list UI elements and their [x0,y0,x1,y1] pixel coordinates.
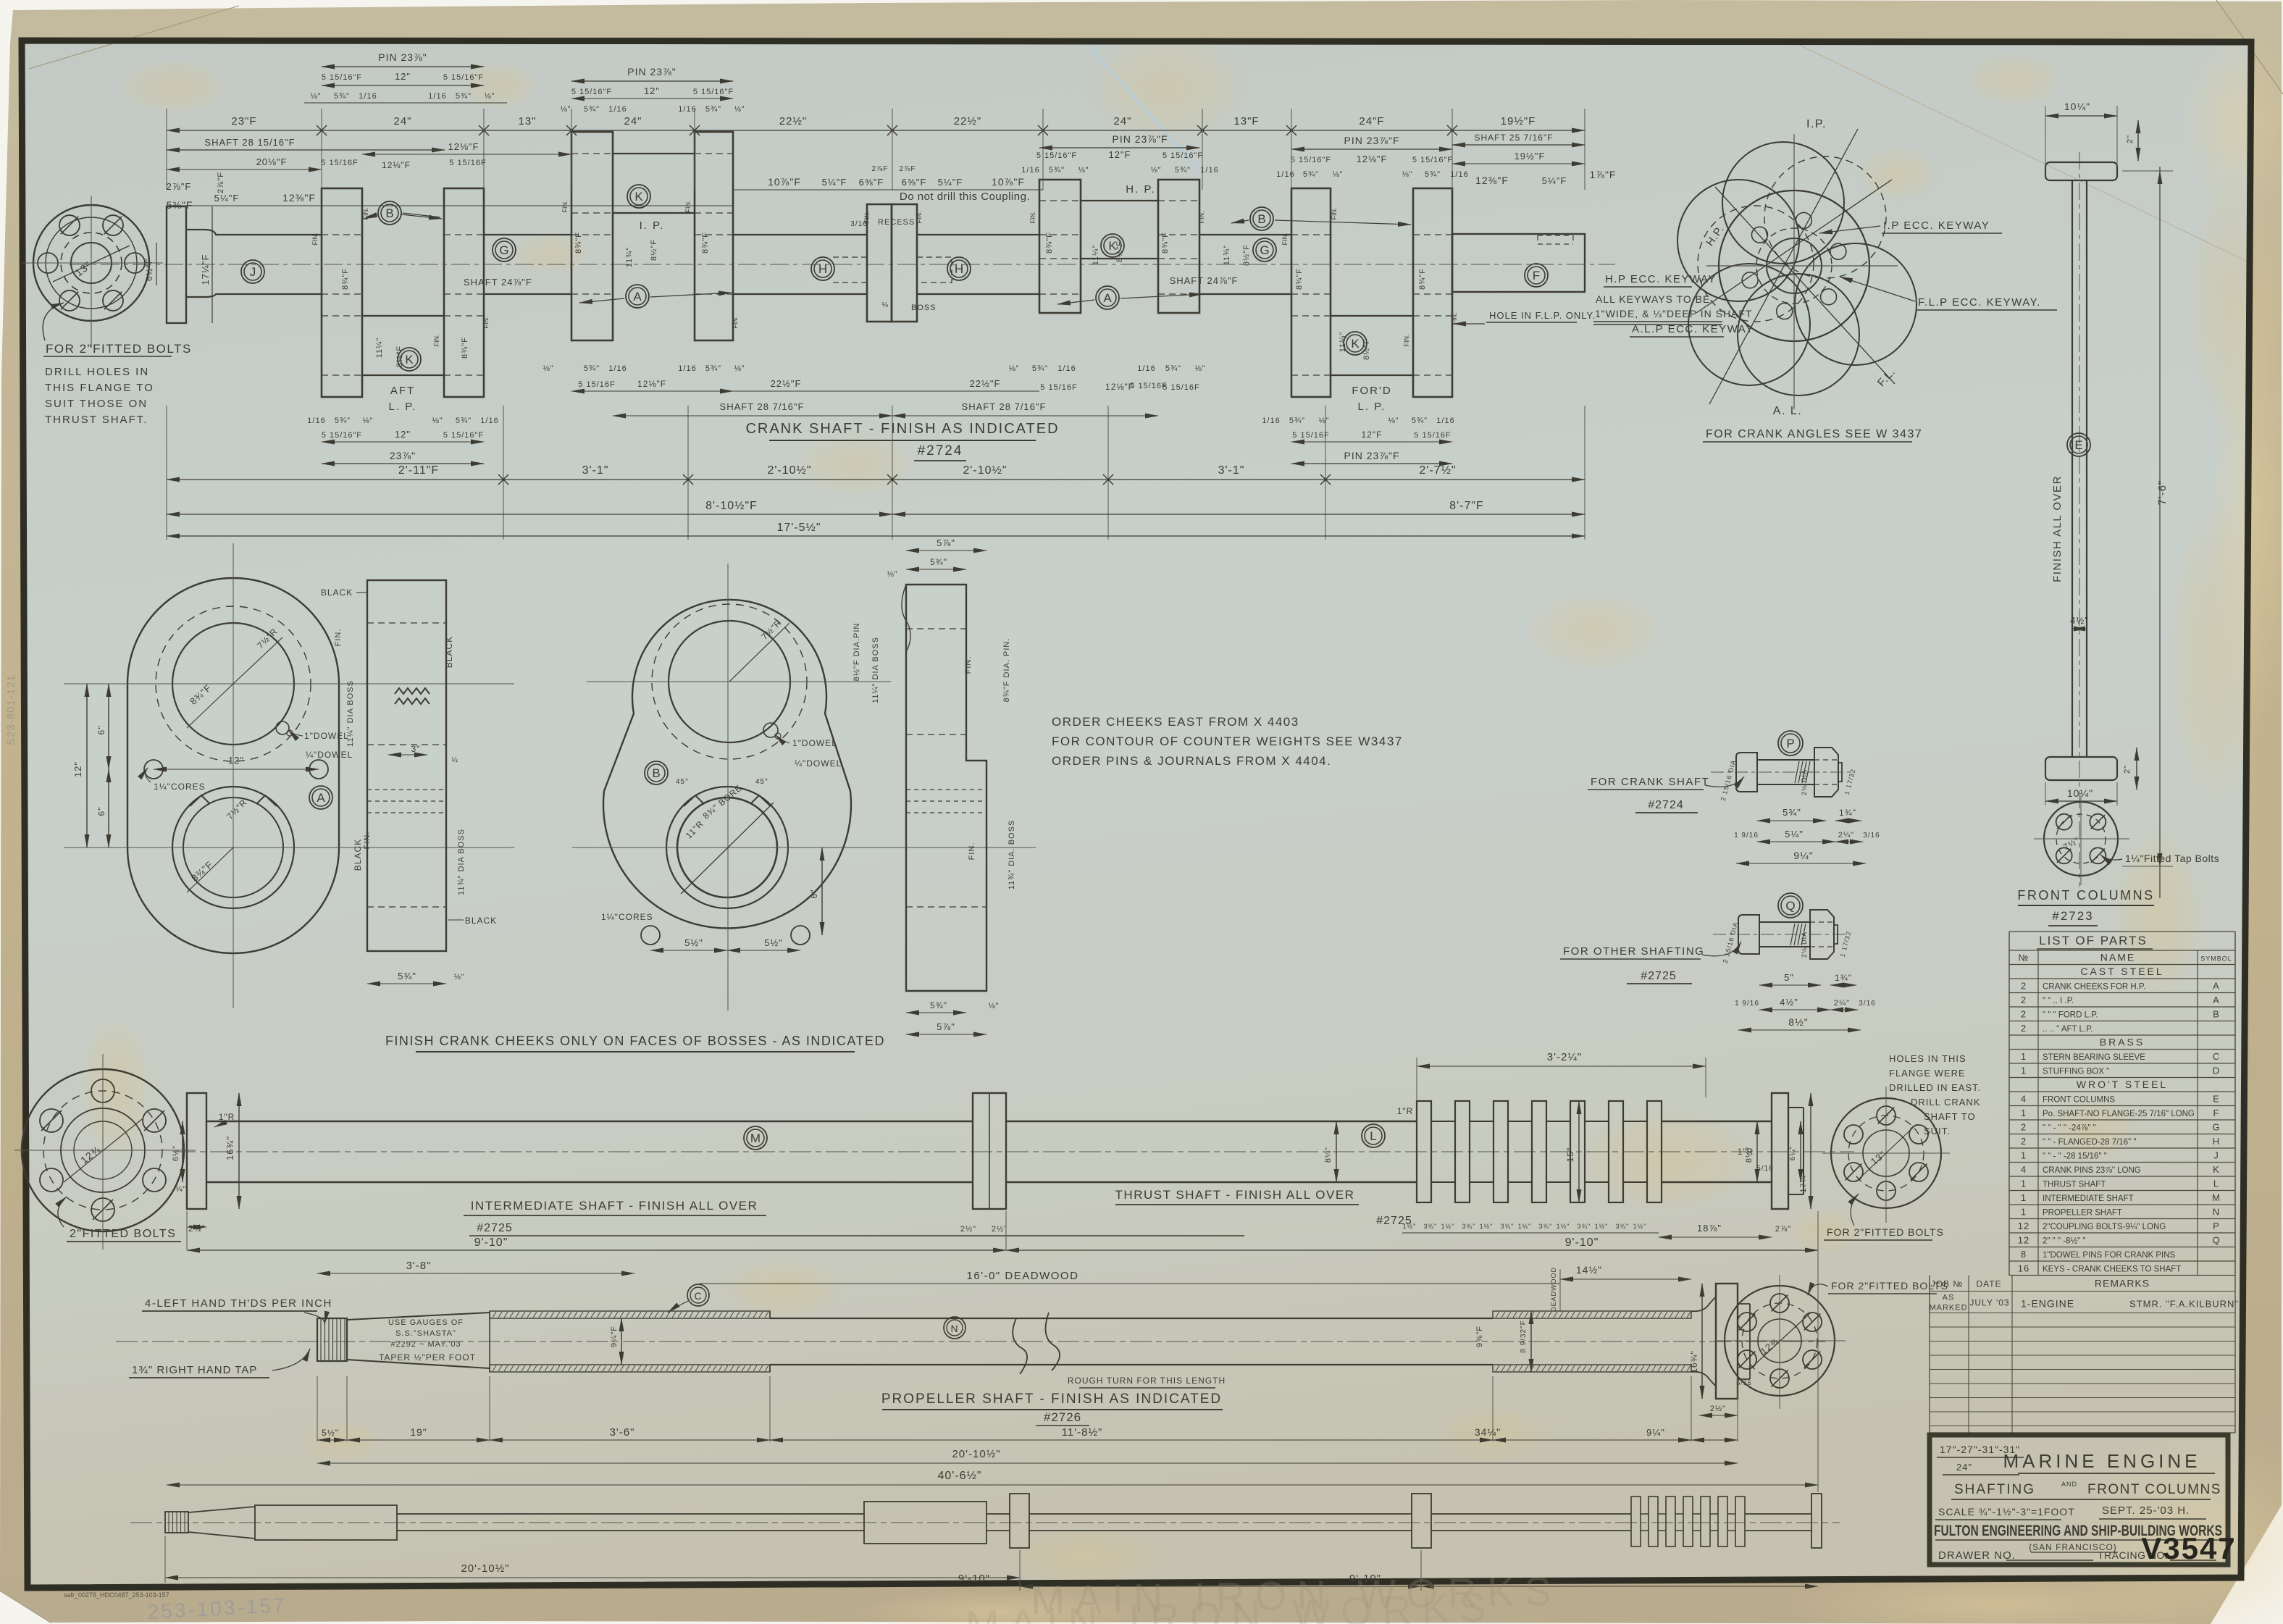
svg-text:4: 4 [2021,1094,2027,1105]
svg-text:SYMBOL: SYMBOL [2200,955,2232,963]
svg-text:FIN.: FIN. [311,233,319,246]
svg-text:2'-10½": 2'-10½" [963,464,1007,477]
svg-text:PIN 23⅞"F: PIN 23⅞"F [1344,135,1400,146]
svg-text:FIN.: FIN. [964,656,973,674]
svg-text:J: J [250,265,256,279]
svg-text:INTERMEDIATE SHAFT - FINISH AL: INTERMEDIATE SHAFT - FINISH ALL OVER [471,1199,758,1213]
svg-text:1/16: 1/16 [1137,364,1155,373]
svg-text:5¾": 5¾" [1783,807,1801,818]
svg-text:16¾": 16¾" [225,1136,235,1160]
svg-text:" " - " -28 15/16" ": " " - " -28 15/16" " [2043,1152,2107,1161]
svg-text:6⅜"F: 6⅜"F [859,177,884,188]
svg-text:14½": 14½" [1576,1264,1602,1276]
svg-text:FOR 2"FITTED BOLTS: FOR 2"FITTED BOLTS [1827,1226,1944,1238]
svg-text:G: G [499,243,508,257]
svg-text:8½"F: 8½"F [1242,244,1251,266]
svg-text:24": 24" [393,115,411,127]
svg-text:SHAFT TO: SHAFT TO [1924,1111,1976,1122]
svg-text:№: № [2019,953,2029,963]
svg-text:5 15/16"F: 5 15/16"F [1163,151,1203,160]
svg-text:A: A [2213,981,2220,992]
svg-text:" " " FORD L.P.: " " " FORD L.P. [2043,1011,2098,1020]
svg-text:1½": 1½" [1441,1223,1455,1230]
svg-text:9'-10": 9'-10" [1565,1236,1599,1249]
svg-text:H: H [818,262,827,276]
svg-text:¼"DOWEL: ¼"DOWEL [795,758,842,769]
svg-text:5 15/16"F: 5 15/16"F [1412,156,1453,164]
svg-text:5 15/16F: 5 15/16F [1163,383,1199,392]
svg-text:BOSS: BOSS [911,304,937,312]
svg-text:AND: AND [2061,1481,2077,1488]
svg-text:5¾": 5¾" [705,105,721,114]
svg-text:FOR CRANK ANGLES SEE W 3437: FOR CRANK ANGLES SEE W 3437 [1706,428,1922,440]
svg-text:FOR'D: FOR'D [1352,385,1391,397]
svg-text:5¾": 5¾" [1425,170,1441,179]
svg-text:1/16: 1/16 [608,105,627,114]
svg-text:22½": 22½" [954,115,982,127]
svg-text:1"DOWEL: 1"DOWEL [304,731,349,741]
svg-text:HOLES IN THIS: HOLES IN THIS [1889,1053,1966,1064]
svg-text:2: 2 [2021,1122,2027,1133]
svg-text:3'-8": 3'-8" [406,1260,432,1272]
svg-text:1: 1 [2021,1108,2027,1118]
svg-text:PIN 23⅞": PIN 23⅞" [378,51,427,63]
svg-text:F: F [2213,1108,2220,1118]
svg-text:12": 12" [395,429,411,440]
svg-text:E: E [2074,438,2082,452]
svg-text:5¾": 5¾" [1175,166,1191,175]
svg-text:8 9/32"F: 8 9/32"F [1520,1320,1528,1352]
svg-text:1"DOWEL: 1"DOWEL [792,738,837,748]
svg-text:FRONT COLUMNS: FRONT COLUMNS [2087,1482,2221,1497]
svg-text:C: C [694,1290,702,1302]
svg-text:8½"F: 8½"F [395,346,404,367]
svg-text:CRANK CHEEKS FOR H.P.: CRANK CHEEKS FOR H.P. [2043,983,2145,992]
svg-text:B: B [1257,212,1265,226]
svg-text:1/16: 1/16 [1450,170,1468,179]
svg-text:2'-7½": 2'-7½" [1419,464,1456,477]
svg-text:6½"F: 6½"F [144,258,154,281]
svg-text:10¼": 10¼" [2064,101,2090,112]
svg-text:INTERMEDIATE SHAFT: INTERMEDIATE SHAFT [2043,1194,2134,1203]
svg-text:SHAFT 25 7/16"F: SHAFT 25 7/16"F [1474,133,1553,143]
svg-text:2: 2 [2021,1136,2027,1147]
svg-text:F: F [1533,269,1540,282]
svg-text:1¾": 1¾" [1835,973,1852,983]
svg-text:1-ENGINE: 1-ENGINE [2021,1298,2074,1310]
svg-text:13": 13" [518,115,536,127]
svg-text:⅛": ⅛" [734,364,745,373]
svg-text:1"R: 1"R [1397,1106,1414,1116]
svg-text:L: L [2213,1179,2219,1189]
svg-text:2: 2 [2021,1009,2027,1020]
svg-text:5 15/16"F: 5 15/16"F [1291,156,1331,164]
svg-text:SHAFT 24⅞"F: SHAFT 24⅞"F [1170,275,1239,286]
svg-text:8: 8 [2021,1249,2027,1260]
svg-text:8¾"F: 8¾"F [1418,268,1427,290]
svg-text:1: 1 [2021,1066,2027,1076]
svg-text:FIN.: FIN. [482,317,490,329]
svg-text:12⅛"F: 12⅛"F [382,160,411,170]
svg-text:5 15/16F: 5 15/16F [321,159,358,167]
svg-text:1: 1 [2021,1051,2027,1062]
svg-text:12⅜"F: 12⅜"F [1475,175,1509,186]
svg-text:SUIT.: SUIT. [1924,1126,1951,1137]
svg-text:5¾": 5¾" [1289,417,1305,425]
svg-text:12": 12" [644,85,660,96]
svg-text:1¾": 1¾" [1839,808,1856,818]
svg-text:HOLE IN F.L.P. ONLY.: HOLE IN F.L.P. ONLY. [1489,310,1596,321]
svg-text:5½": 5½" [684,937,703,948]
svg-text:13"F: 13"F [1233,115,1259,127]
svg-text:23"F: 23"F [231,115,256,127]
svg-text:SHAFT 28 15/16"F: SHAFT 28 15/16"F [204,137,295,148]
svg-text:B: B [385,206,393,220]
svg-text:24": 24" [1956,1462,1972,1473]
svg-text:KEYS - CRANK CHEEKS TO SHAFT: KEYS - CRANK CHEEKS TO SHAFT [2043,1265,2181,1274]
svg-text:2⅛ DIA: 2⅛ DIA [1801,769,1808,795]
svg-text:FRONT COLUMNS: FRONT COLUMNS [2017,888,2154,903]
svg-text:" " .. I .P.: " " .. I .P. [2043,997,2074,1005]
svg-text:4-LEFT HAND TH'DS PER INCH: 4-LEFT HAND TH'DS PER INCH [145,1297,332,1310]
svg-text:FIN.: FIN. [916,212,923,224]
svg-text:5 15/16F: 5 15/16F [1292,431,1329,440]
svg-text:H: H [2213,1136,2220,1147]
svg-text:2" " " -8½": 2" " " -8½" " [2043,1237,2085,1246]
svg-text:FIN.: FIN. [1451,313,1458,325]
svg-text:5¾": 5¾" [456,417,472,425]
svg-text:5¾": 5¾" [584,105,600,114]
svg-text:#2725: #2725 [477,1222,513,1234]
svg-text:3¾": 3¾" [1462,1223,1476,1230]
svg-text:2'-11"F: 2'-11"F [398,464,439,477]
svg-text:10⅞"F: 10⅞"F [768,176,801,188]
svg-text:WRO'T STEEL: WRO'T STEEL [2077,1079,2168,1090]
svg-text:1⅞"F: 1⅞"F [1590,169,1617,180]
svg-text:2⅞F: 2⅞F [871,165,888,173]
svg-text:5 15/16F: 5 15/16F [1130,382,1167,390]
svg-text:SHAFT 28 7/16"F: SHAFT 28 7/16"F [720,401,805,412]
svg-text:¼": ¼" [175,1185,186,1194]
svg-text:12"F: 12"F [1362,430,1383,440]
svg-text:FIN.: FIN. [1403,335,1410,347]
svg-text:SHAFTING: SHAFTING [1954,1482,2035,1497]
svg-text:2: 2 [2021,995,2027,1005]
svg-text:Q: Q [1785,899,1795,913]
svg-text:5¾": 5¾" [335,417,351,425]
svg-text:A: A [2213,995,2220,1005]
svg-text:⅛: ⅛ [881,301,888,309]
svg-text:1/16: 1/16 [1057,364,1076,373]
svg-text:⅛": ⅛" [1332,170,1343,179]
svg-text:2"FITTED BOLTS: 2"FITTED BOLTS [70,1228,176,1240]
svg-text:6": 6" [96,807,106,816]
svg-text:⅛": ⅛" [453,973,464,981]
svg-text:1: 1 [2021,1179,2027,1189]
svg-text:3¾": 3¾" [1616,1223,1630,1230]
svg-text:8¾"F: 8¾"F [461,337,469,359]
svg-text:5¼": 5¼" [1785,829,1804,840]
svg-text:12⅛"F: 12⅛"F [1105,382,1134,392]
svg-text:#2725: #2725 [1641,970,1677,982]
svg-text:K: K [1351,337,1360,351]
svg-text:5 15/16F: 5 15/16F [449,159,486,167]
svg-text:8½"F: 8½"F [650,239,658,261]
svg-text:3": 3" [411,744,421,754]
svg-text:REMARKS: REMARKS [2095,1278,2150,1289]
svg-text:H. P.: H. P. [1126,183,1155,196]
svg-text:L: L [1370,1129,1376,1143]
svg-text:3¾": 3¾" [1501,1223,1515,1230]
svg-text:2⅞": 2⅞" [1775,1225,1791,1234]
svg-text:5¾": 5¾" [1303,170,1319,179]
svg-text:⅛": ⅛" [484,92,495,101]
svg-text:FIN.: FIN. [1331,208,1338,220]
svg-text:FIN.: FIN. [1198,212,1205,224]
svg-text:34¼": 34¼" [1475,1426,1501,1438]
svg-text:8'-10½"F: 8'-10½"F [705,500,758,512]
svg-text:2⅞"F: 2⅞"F [217,172,225,193]
svg-text:M: M [750,1131,761,1145]
svg-text:⅛": ⅛" [432,417,443,425]
svg-text:G: G [2212,1122,2220,1133]
svg-text:G: G [1260,243,1269,257]
svg-text:3/16: 3/16 [1859,1000,1875,1008]
svg-text:LIST OF PARTS: LIST OF PARTS [2039,934,2148,947]
svg-text:5 15/16F: 5 15/16F [578,380,615,389]
svg-text:A: A [317,791,325,805]
svg-text:BLACK: BLACK [465,916,497,926]
svg-text:12⅜"F: 12⅜"F [282,192,316,204]
svg-text:9¼": 9¼" [1793,850,1813,861]
svg-text:THRUST SHAFT: THRUST SHAFT [2043,1181,2106,1189]
svg-text:SCALE ¾"-1½"-3"=1FOOT: SCALE ¾"-1½"-3"=1FOOT [1938,1506,2075,1518]
svg-text:1/16: 1/16 [678,364,696,373]
svg-text:FIN.: FIN. [863,212,871,224]
svg-text:H: H [955,262,963,276]
svg-text:5 15/16F: 5 15/16F [1040,383,1077,392]
svg-text:11¼" DIA BOSS: 11¼" DIA BOSS [346,680,355,747]
svg-text:8¾"F: 8¾"F [574,232,583,254]
svg-text:12⅛"F: 12⅛"F [1357,154,1388,164]
svg-text:8¾"F: 8¾"F [1161,232,1170,254]
svg-text:B: B [652,766,660,780]
svg-text:2⅛ DIA: 2⅛ DIA [1801,932,1808,958]
svg-text:2": 2" [2126,135,2135,143]
svg-text:24"F: 24"F [1359,115,1384,127]
svg-text:40'-6½": 40'-6½" [937,1470,981,1482]
svg-text:P: P [2213,1221,2220,1231]
svg-text:Do not drill this Coupling.: Do not drill this Coupling. [900,191,1030,203]
svg-text:#2724: #2724 [918,443,963,459]
svg-text:6": 6" [809,890,819,899]
svg-text:5 15/16F: 5 15/16F [1414,431,1451,440]
svg-text:5 15/16"F: 5 15/16"F [322,73,362,82]
svg-text:5⅞": 5⅞" [937,537,955,548]
svg-text:N: N [950,1323,958,1334]
svg-text:3'-1": 3'-1" [1218,464,1245,477]
svg-text:" " - " " -24⅞" ": " " - " " -24⅞" " [2043,1124,2096,1133]
svg-text:8¼": 8¼" [1324,1147,1333,1163]
svg-text:FIN.: FIN. [363,832,372,850]
svg-text:FOR CRANK SHAFT: FOR CRANK SHAFT [1591,776,1709,788]
svg-text:5 15/16"F: 5 15/16"F [1036,151,1077,160]
svg-text:H.P ECC. KEYWAY: H.P ECC. KEYWAY [1605,273,1717,285]
svg-text:DRILLED IN EAST.: DRILLED IN EAST. [1889,1082,1981,1093]
svg-text:1/16: 1/16 [608,364,627,373]
svg-text:1/16: 1/16 [428,92,446,101]
svg-text:N: N [2213,1207,2220,1218]
svg-text:5¾": 5¾" [1165,364,1181,373]
svg-text:I.P.: I.P. [1806,118,1827,130]
svg-text:S23-801-121: S23-801-121 [5,674,17,745]
svg-text:#2726: #2726 [1044,1410,1081,1424]
svg-text:5¾": 5¾" [1412,417,1428,425]
svg-text:3'-2¼": 3'-2¼" [1547,1051,1582,1063]
svg-text:5¾": 5¾" [584,364,600,373]
svg-text:FIN.: FIN. [433,335,440,347]
svg-text:11¾": 11¾" [1223,245,1231,266]
svg-text:A: A [1103,291,1112,305]
svg-text:AS: AS [1943,1294,1955,1302]
svg-text:Q: Q [2212,1235,2220,1246]
svg-text:1¼"Fitted Tap Bolts: 1¼"Fitted Tap Bolts [2125,853,2219,864]
svg-text:STUFFING BOX ": STUFFING BOX " [2043,1068,2109,1076]
svg-text:safr_00278_HDC0487_253-103-157: safr_00278_HDC0487_253-103-157 [64,1591,169,1599]
svg-text:1 9/16: 1 9/16 [1735,1000,1759,1008]
svg-text:17¼"F: 17¼"F [200,254,211,285]
svg-text:5¾": 5¾" [705,364,721,373]
svg-text:3'-1": 3'-1" [582,464,609,477]
svg-text:1/16: 1/16 [359,92,377,101]
svg-text:1"R: 1"R [219,1112,235,1122]
svg-text:5⅜"F: 5⅜"F [167,199,193,211]
svg-text:12: 12 [2018,1235,2029,1246]
svg-text:5¾": 5¾" [1032,364,1048,373]
svg-text:20'-10½": 20'-10½" [461,1562,509,1575]
svg-text:DRAWER NO.: DRAWER NO. [1938,1549,2016,1562]
svg-text:DEADWOOD: DEADWOOD [1550,1267,1557,1312]
svg-text:ORDER CHEEKS EAST FROM X 4403: ORDER CHEEKS EAST FROM X 4403 [1052,715,1299,729]
svg-text:⅛": ⅛" [1402,170,1412,179]
svg-text:5¾": 5¾" [1049,166,1065,175]
svg-text:12⅛"F: 12⅛"F [637,379,666,389]
svg-text:9'-10": 9'-10" [474,1236,508,1249]
svg-text:DRILL HOLES IN: DRILL HOLES IN [45,366,149,378]
svg-text:5½": 5½" [322,1428,339,1438]
svg-text:6¼": 6¼" [1788,1146,1797,1160]
svg-text:P: P [1786,737,1794,750]
svg-text:11¼": 11¼" [1092,245,1100,266]
svg-text:4½": 4½" [2070,615,2089,626]
svg-text:8'-7"F: 8'-7"F [1449,500,1484,512]
svg-text:8½"F: 8½"F [1115,240,1124,262]
svg-text:FOR OTHER SHAFTING: FOR OTHER SHAFTING [1563,945,1704,958]
svg-text:12": 12" [72,761,83,777]
svg-text:⅛": ⅛" [988,1002,999,1010]
svg-text:5¼"F: 5¼"F [822,177,847,188]
svg-text:1½": 1½" [1633,1223,1647,1230]
svg-text:J: J [2213,1150,2219,1161]
svg-text:USE GAUGES OF: USE GAUGES OF [388,1318,464,1327]
svg-text:⅛": ⅛" [362,417,373,425]
svg-text:FOR 2"FITTED BOLTS: FOR 2"FITTED BOLTS [46,342,192,356]
svg-text:MARKED: MARKED [1929,1304,1967,1313]
svg-text:1 9/16: 1 9/16 [1734,832,1759,840]
svg-text:22½"F: 22½"F [970,378,1001,389]
svg-text:5¾": 5¾" [398,971,416,981]
svg-text:19½"F: 19½"F [1515,151,1546,162]
svg-text:#2724: #2724 [1648,799,1684,811]
svg-text:5¾": 5¾" [334,92,350,101]
svg-text:17'-5½": 17'-5½" [776,522,821,534]
svg-text:8½"F: 8½"F [1362,338,1371,360]
svg-text:5¾": 5¾" [456,92,472,101]
svg-text:ORDER PINS & JOURNALS FROM X 4: ORDER PINS & JOURNALS FROM X 4404. [1052,754,1331,768]
svg-text:5⅞": 5⅞" [937,1021,955,1032]
svg-text:5 15/16"F: 5 15/16"F [693,88,734,96]
svg-text:2: 2 [2021,1023,2027,1034]
svg-text:3'-6": 3'-6" [610,1426,635,1439]
svg-text:FRONT COLUMNS: FRONT COLUMNS [2043,1096,2115,1105]
svg-text:1: 1 [2021,1150,2027,1161]
svg-text:7'-6": 7'-6" [2156,480,2169,506]
svg-text:L. P.: L. P. [1358,401,1386,413]
svg-text:THRUST SHAFT.: THRUST SHAFT. [45,414,148,426]
svg-text:5¼"F: 5¼"F [214,193,240,204]
svg-text:12": 12" [395,71,411,82]
svg-text:1"DOWEL PINS FOR CRANK PINS: 1"DOWEL PINS FOR CRANK PINS [2043,1251,2176,1260]
svg-text:⅛": ⅛" [1078,166,1089,175]
svg-text:FIN.: FIN. [334,629,343,647]
svg-text:STERN BEARING SLEEVE: STERN BEARING SLEEVE [2043,1053,2145,1062]
svg-text:10⅞"F: 10⅞"F [992,176,1025,188]
svg-text:9¼"F: 9¼"F [610,1326,619,1347]
svg-text:FIN.: FIN. [362,208,369,220]
svg-text:5 15/16"F: 5 15/16"F [571,88,612,96]
svg-text:FIN.: FIN. [1281,233,1289,246]
svg-text:9⅜"F: 9⅜"F [1475,1326,1484,1347]
svg-text:PROPELLER SHAFT - FINISH AS IN: PROPELLER SHAFT - FINISH AS INDICATED [881,1391,1222,1407]
svg-text:DRILL CRANK: DRILL CRANK [1911,1097,1980,1108]
svg-text:⅛": ⅛" [887,570,897,579]
svg-text:S.S."SHASTA": S.S."SHASTA" [395,1329,456,1338]
svg-text:K: K [2213,1164,2220,1175]
svg-text:D: D [2213,1066,2220,1076]
svg-text:SUIT THOSE ON: SUIT THOSE ON [45,398,148,410]
svg-text:19½"F: 19½"F [1501,115,1536,127]
svg-text:THRUST SHAFT - FINISH ALL OVER: THRUST SHAFT - FINISH ALL OVER [1115,1188,1355,1202]
svg-text:FIN.: FIN. [561,201,569,213]
svg-text:8¾"F: 8¾"F [1295,268,1304,290]
svg-text:24": 24" [1113,115,1131,127]
svg-text:⅛": ⅛" [1318,417,1329,425]
svg-text:SEPT. 25-'03 H.: SEPT. 25-'03 H. [2102,1504,2190,1517]
svg-text:1½": 1½" [1518,1223,1532,1230]
svg-text:11¾": 11¾" [625,247,634,268]
svg-text:2": 2" [2123,765,2132,774]
svg-text:E: E [2213,1094,2220,1105]
svg-text:5¼"F: 5¼"F [938,177,963,188]
svg-text:5½": 5½" [764,937,783,948]
svg-text:BLACK: BLACK [353,839,363,871]
svg-text:F.L.P ECC. KEYWAY.: F.L.P ECC. KEYWAY. [1918,296,2041,309]
svg-text:THIS FLANGE TO: THIS FLANGE TO [45,382,154,394]
svg-text:1/16: 1/16 [1021,166,1039,175]
svg-text:6⅜"F: 6⅜"F [902,177,927,188]
svg-text:1/16: 1/16 [1200,166,1218,175]
svg-text:¼: ¼ [451,756,458,764]
